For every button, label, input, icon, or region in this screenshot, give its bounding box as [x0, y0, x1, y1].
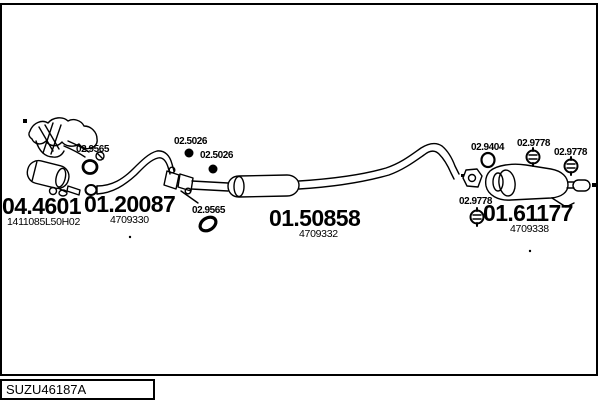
mount-square-icon	[592, 183, 596, 187]
mount-square-icon	[23, 119, 27, 123]
bolt-icon	[469, 175, 476, 182]
diagram-code-box: SUZU46187A	[0, 379, 155, 400]
speck	[529, 250, 531, 252]
gasket-ring-9565-a	[83, 161, 97, 174]
part-ref-4709330: 4709330	[110, 215, 149, 226]
bolt-dot-5026-b	[209, 165, 218, 174]
front-pipe	[97, 151, 174, 194]
mid-pipe	[299, 144, 459, 189]
fitting-code-02-9404[interactable]: 02.9404	[471, 143, 504, 153]
catalytic-converter	[25, 158, 71, 190]
fitting-code-02-5026-a[interactable]: 02.5026	[174, 137, 207, 147]
gasket-ring-9404	[482, 153, 495, 167]
rubber-hanger-icon	[471, 208, 484, 226]
part-code-04-4601[interactable]: 04.4601	[2, 195, 81, 218]
centre-muffler	[228, 175, 299, 197]
gasket-ring-9565-b	[198, 214, 219, 233]
fitting-code-02-5026-b[interactable]: 02.5026	[200, 151, 233, 161]
part-code-01-61177[interactable]: 01.61177	[483, 202, 573, 225]
fitting-code-02-9778-a[interactable]: 02.9778	[517, 139, 550, 149]
bolt-dot-5026-a	[185, 149, 194, 158]
part-code-01-20087[interactable]: 01.20087	[84, 193, 175, 216]
diagram-code: SUZU46187A	[6, 383, 86, 396]
part-ref-1411085l50h02: 1411085L50H02	[7, 217, 80, 228]
fitting-code-02-9778-c[interactable]: 02.9778	[459, 197, 492, 207]
part-ref-4709332: 4709332	[299, 229, 338, 240]
fitting-code-02-9565-b[interactable]: 02.9565	[192, 206, 225, 216]
part-ref-4709338: 4709338	[510, 224, 549, 235]
fitting-code-02-9565-a[interactable]: 02.9565	[76, 145, 109, 155]
rubber-hanger-icon	[565, 157, 578, 175]
rubber-hanger-icon	[527, 148, 540, 166]
rear-muffler-inlet	[461, 169, 482, 187]
tailpipe-tip	[573, 180, 590, 191]
speck	[129, 236, 131, 238]
tailpipe	[567, 180, 596, 191]
part-code-01-50858[interactable]: 01.50858	[269, 207, 360, 230]
fitting-code-02-9778-b[interactable]: 02.9778	[554, 148, 587, 158]
